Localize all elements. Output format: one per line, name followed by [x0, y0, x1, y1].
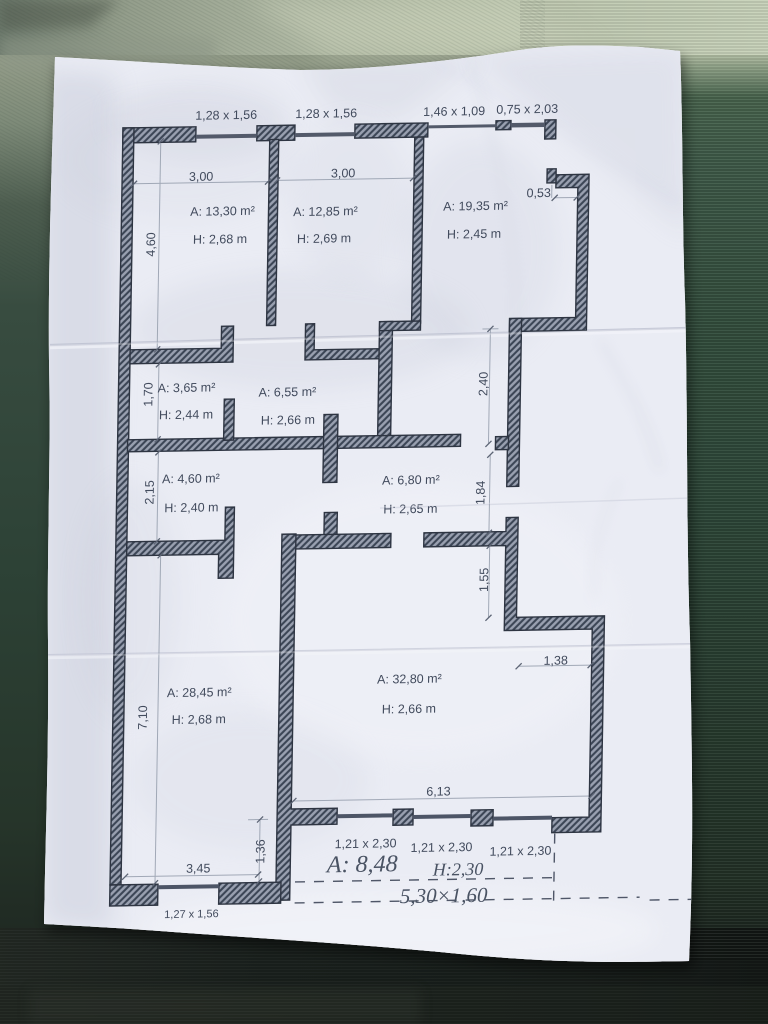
- svg-text:H: 2,65 m: H: 2,65 m: [383, 502, 437, 517]
- svg-text:2,40: 2,40: [476, 372, 490, 397]
- svg-text:H: 2,44 m: H: 2,44 m: [159, 407, 213, 422]
- svg-text:0,53: 0,53: [526, 186, 551, 200]
- svg-text:1,46 x 1,09: 1,46 x 1,09: [423, 104, 485, 119]
- svg-text:1,38: 1,38: [543, 653, 568, 667]
- svg-text:5,30×1,60: 5,30×1,60: [400, 883, 489, 908]
- svg-text:1,70: 1,70: [141, 382, 155, 407]
- svg-text:A: 8,48: A: 8,48: [325, 851, 398, 878]
- svg-text:3,45: 3,45: [186, 861, 211, 875]
- svg-text:1,21 x 2,30: 1,21 x 2,30: [489, 844, 551, 859]
- svg-text:H: 2,40 m: H: 2,40 m: [164, 500, 218, 515]
- svg-text:A: 12,85 m²: A: 12,85 m²: [293, 204, 358, 219]
- svg-text:1,21 x 2,30: 1,21 x 2,30: [335, 836, 397, 851]
- svg-text:6,13: 6,13: [426, 784, 451, 798]
- svg-text:A: 28,45 m²: A: 28,45 m²: [167, 685, 232, 700]
- svg-text:1,27 x 1,56: 1,27 x 1,56: [164, 908, 219, 921]
- svg-text:A: 32,80 m²: A: 32,80 m²: [377, 672, 442, 687]
- svg-text:A: 3,65 m²: A: 3,65 m²: [158, 380, 216, 395]
- svg-text:H: 2,45 m: H: 2,45 m: [447, 227, 501, 242]
- svg-text:4,60: 4,60: [144, 232, 158, 257]
- svg-text:A: 6,80 m²: A: 6,80 m²: [382, 473, 440, 488]
- svg-text:1,28 x 1,56: 1,28 x 1,56: [195, 108, 257, 123]
- svg-text:A: 19,35 m²: A: 19,35 m²: [443, 199, 508, 214]
- svg-text:A: 13,30 m²: A: 13,30 m²: [190, 204, 255, 219]
- svg-text:H: 2,69 m: H: 2,69 m: [297, 231, 351, 246]
- svg-text:1,21 x 2,30: 1,21 x 2,30: [410, 840, 472, 855]
- svg-text:3,00: 3,00: [331, 166, 356, 180]
- svg-text:H:2,30: H:2,30: [432, 859, 484, 880]
- svg-text:1,36: 1,36: [253, 839, 267, 864]
- svg-text:0,75 x 2,03: 0,75 x 2,03: [496, 102, 558, 117]
- svg-text:3,00: 3,00: [189, 169, 214, 183]
- svg-text:1,55: 1,55: [477, 568, 491, 593]
- svg-text:1,28 x 1,56: 1,28 x 1,56: [295, 106, 357, 121]
- svg-text:H: 2,68 m: H: 2,68 m: [172, 712, 226, 727]
- svg-text:A: 6,55 m²: A: 6,55 m²: [258, 385, 316, 400]
- svg-text:H: 2,66 m: H: 2,66 m: [382, 702, 436, 717]
- svg-text:H: 2,68 m: H: 2,68 m: [193, 232, 247, 247]
- svg-text:H: 2,66 m: H: 2,66 m: [261, 413, 315, 428]
- svg-text:1,84: 1,84: [473, 481, 487, 506]
- svg-text:2,15: 2,15: [143, 480, 157, 505]
- svg-text:A: 4,60 m²: A: 4,60 m²: [162, 471, 220, 486]
- svg-text:7,10: 7,10: [136, 705, 150, 730]
